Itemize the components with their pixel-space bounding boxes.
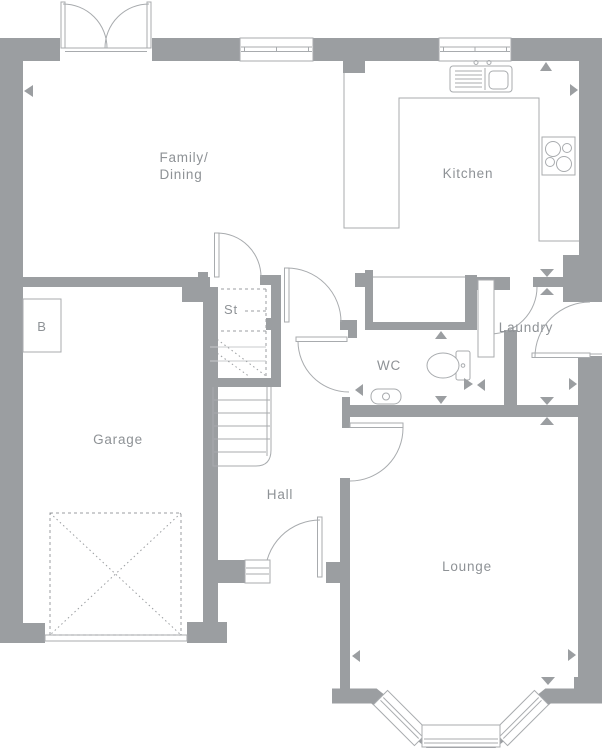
room-label-store: St — [224, 302, 238, 317]
garage-door-mechanism — [50, 513, 181, 635]
bay-window-centre-pane — [422, 725, 500, 747]
room-label-family-line2: Dining — [159, 167, 202, 182]
sink-icon — [450, 61, 512, 93]
marker-down-laundry-top — [540, 269, 554, 277]
bay-window — [332, 690, 602, 747]
room-label-laundry: Laundry — [499, 320, 553, 335]
marker-right-laundry — [569, 378, 577, 390]
room-label-lounge: Lounge — [442, 559, 492, 574]
room-label-kitchen: Kitchen — [443, 166, 494, 181]
laundry-worktop — [478, 280, 494, 357]
basin-icon — [371, 389, 401, 404]
room-label-wc: WC — [377, 358, 401, 373]
room-label-hall: Hall — [267, 487, 293, 502]
front-door — [265, 517, 322, 577]
marker-left-lounge — [352, 650, 360, 662]
marker-down-wc — [435, 396, 447, 404]
marker-down-south-wall — [540, 397, 554, 405]
lounge-door — [350, 423, 403, 481]
front-door-step — [245, 560, 270, 583]
marker-left-family — [24, 85, 33, 97]
window-top-right — [439, 38, 511, 61]
family-hall-door — [285, 268, 342, 322]
marker-up-wc — [435, 331, 447, 339]
french-doors — [61, 2, 151, 52]
room-label-garage: Garage — [93, 432, 143, 447]
boiler-label: B — [37, 319, 46, 334]
window-top-left — [240, 38, 313, 61]
marker-up-kitchen — [540, 62, 552, 71]
bay-window-right-pane — [493, 690, 548, 745]
dimension-markers — [24, 62, 578, 685]
wc-door — [296, 337, 349, 392]
room-labels: Family/ Dining Kitchen St B Garage Hall … — [37, 150, 553, 574]
toilet-icon — [427, 351, 470, 380]
marker-right-lounge — [568, 649, 576, 661]
marker-right-kitchen — [570, 84, 578, 96]
stairs — [213, 387, 271, 466]
marker-down-lounge — [541, 677, 555, 685]
marker-left-laundry — [477, 379, 485, 391]
hob-icon — [542, 137, 575, 175]
room-label-family-line1: Family/ — [159, 150, 208, 165]
marker-up-laundry-top — [540, 288, 554, 295]
floor-plan: Family/ Dining Kitchen St B Garage Hall … — [0, 0, 602, 748]
bay-window-left-pane — [373, 690, 428, 745]
floor-plan-page: Family/ Dining Kitchen St B Garage Hall … — [0, 0, 602, 748]
marker-up-south-wall — [540, 417, 554, 425]
store-door — [215, 233, 262, 277]
marker-left-wc — [355, 384, 363, 396]
garage-door — [45, 635, 187, 641]
